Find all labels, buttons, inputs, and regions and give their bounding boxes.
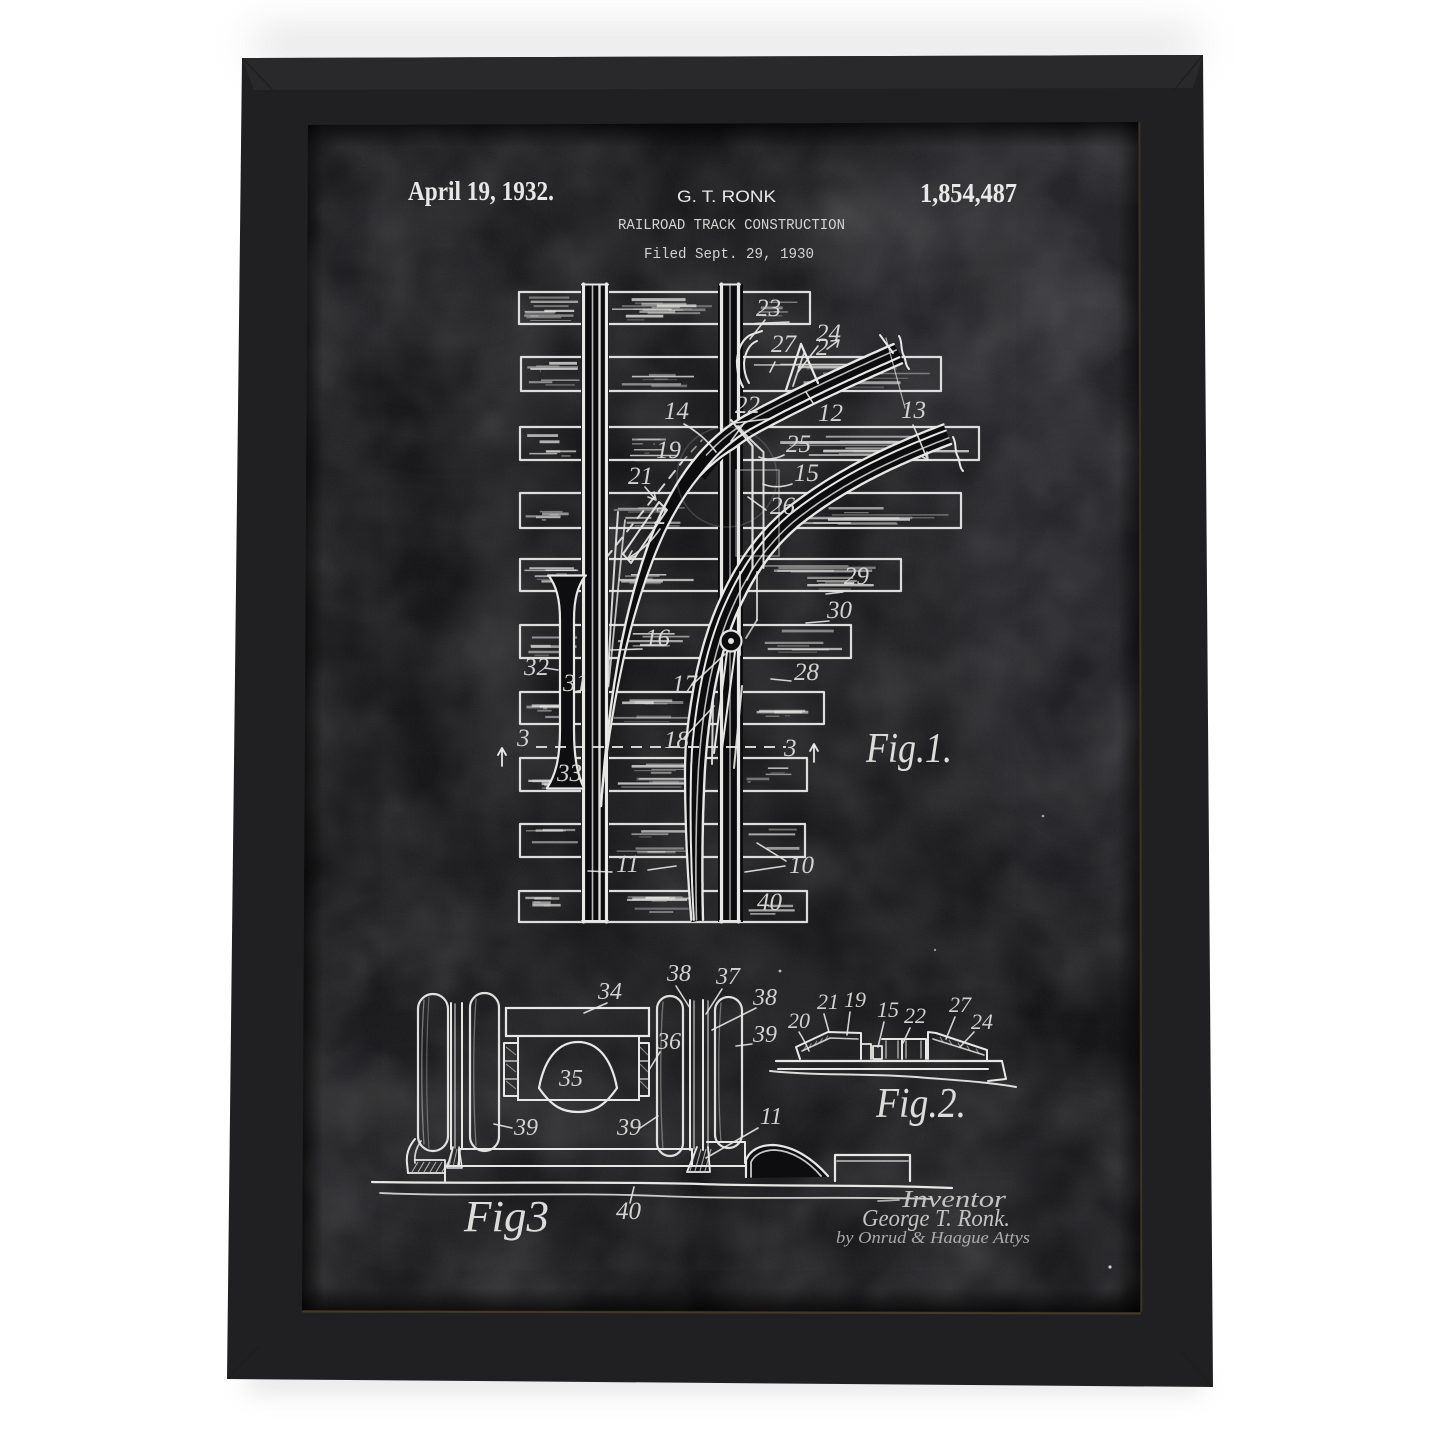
svg-text:23: 23 xyxy=(756,295,781,322)
svg-text:36: 36 xyxy=(656,1029,681,1055)
svg-text:3: 3 xyxy=(516,725,530,752)
svg-text:34: 34 xyxy=(597,979,622,1005)
svg-text:27: 27 xyxy=(949,992,972,1017)
svg-text:RAILROAD TRACK CONSTRUCTION: RAILROAD TRACK CONSTRUCTION xyxy=(618,217,845,234)
svg-text:14: 14 xyxy=(664,398,689,425)
svg-text:3: 3 xyxy=(783,735,797,762)
svg-text:27: 27 xyxy=(771,331,798,358)
svg-text:21: 21 xyxy=(628,463,653,490)
svg-text:35: 35 xyxy=(558,1066,583,1092)
svg-text:by Onrud & Haague Attys: by Onrud & Haague Attys xyxy=(836,1228,1030,1247)
svg-text:38: 38 xyxy=(666,961,691,987)
svg-text:37: 37 xyxy=(715,964,741,990)
svg-text:Filed Sept. 29, 1930: Filed Sept. 29, 1930 xyxy=(644,246,814,263)
svg-text:39: 39 xyxy=(616,1115,641,1141)
svg-text:12: 12 xyxy=(818,400,843,427)
svg-text:31: 31 xyxy=(562,670,588,697)
svg-text:13: 13 xyxy=(901,397,926,424)
svg-text:Fig3: Fig3 xyxy=(463,1192,549,1241)
svg-text:15: 15 xyxy=(877,997,899,1022)
svg-text:19: 19 xyxy=(656,437,682,464)
svg-text:April 19, 1932.: April 19, 1932. xyxy=(408,176,554,206)
svg-text:26: 26 xyxy=(770,493,796,520)
svg-text:22: 22 xyxy=(735,392,760,419)
svg-text:29: 29 xyxy=(844,563,870,590)
svg-text:17: 17 xyxy=(672,671,699,698)
svg-text:30: 30 xyxy=(826,597,853,624)
svg-text:1,854,487: 1,854,487 xyxy=(920,178,1017,208)
svg-text:28: 28 xyxy=(794,659,820,686)
svg-text:25: 25 xyxy=(786,431,811,458)
svg-text:Fig.1.: Fig.1. xyxy=(865,726,952,772)
svg-text:33: 33 xyxy=(556,760,582,787)
svg-text:19: 19 xyxy=(844,987,866,1012)
svg-text:21: 21 xyxy=(817,989,839,1014)
svg-text:2: 2 xyxy=(816,334,829,361)
svg-text:16: 16 xyxy=(645,625,671,652)
svg-text:11: 11 xyxy=(616,851,639,878)
svg-text:Fig.2.: Fig.2. xyxy=(875,1081,966,1127)
svg-text:20: 20 xyxy=(788,1008,810,1033)
svg-text:39: 39 xyxy=(752,1022,777,1048)
svg-text:10: 10 xyxy=(789,852,815,879)
svg-text:24: 24 xyxy=(971,1009,993,1034)
svg-text:39: 39 xyxy=(513,1115,538,1141)
svg-text:2: 2 xyxy=(654,503,667,530)
svg-text:G. T. RONK: G. T. RONK xyxy=(677,188,776,206)
svg-text:11: 11 xyxy=(760,1104,782,1130)
svg-text:18: 18 xyxy=(664,727,690,754)
svg-text:38: 38 xyxy=(752,985,777,1011)
svg-text:22: 22 xyxy=(904,1003,926,1028)
svg-text:40: 40 xyxy=(757,889,783,916)
svg-text:15: 15 xyxy=(794,460,819,487)
svg-text:40: 40 xyxy=(616,1198,642,1225)
